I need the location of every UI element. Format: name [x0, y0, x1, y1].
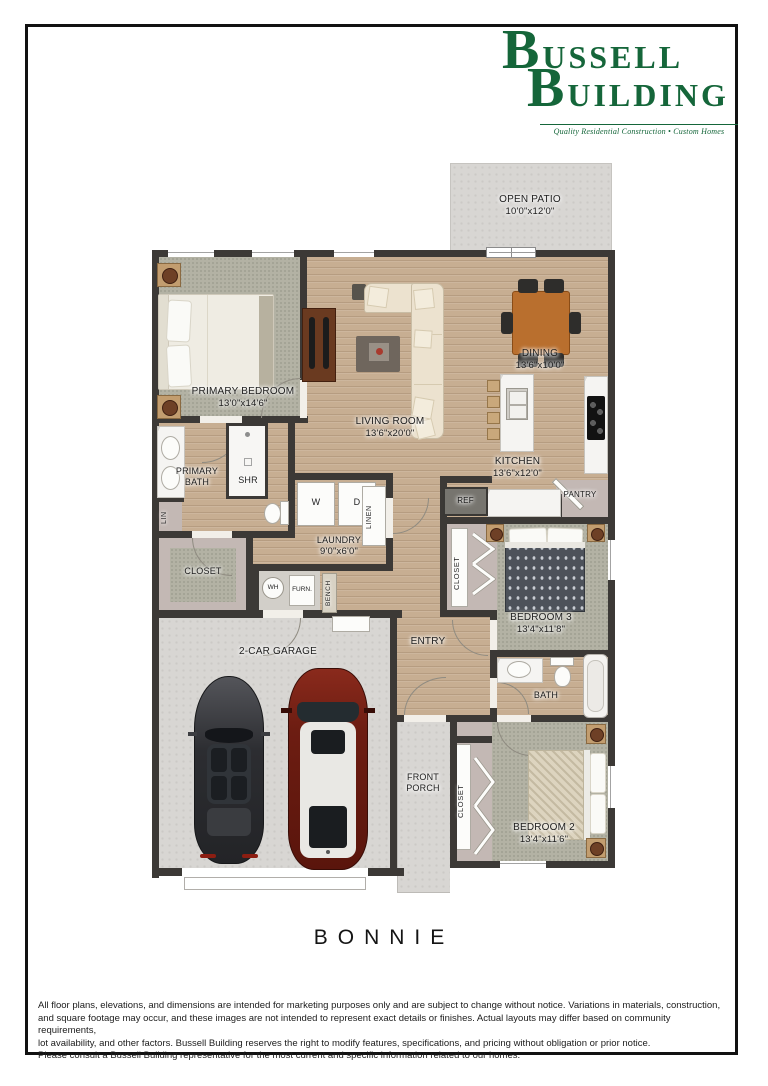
- room-label-closet-bed3: CLOSET: [452, 542, 461, 604]
- primary-bed-pillow-1: [166, 299, 192, 342]
- garage-step: [332, 616, 370, 632]
- room-label-primary-bedroom: PRIMARY BEDROOM 13'0"x14'6": [168, 386, 318, 410]
- disclaimer: All floor plans, elevations, and dimensi…: [38, 1000, 728, 1063]
- dining-chair-2: [544, 279, 564, 293]
- kitchen-sink: [506, 388, 528, 420]
- wall-exterior-top: [152, 250, 615, 257]
- logo-tagline: Quality Residential Construction • Custo…: [540, 124, 738, 136]
- dining-chair-5: [501, 312, 513, 334]
- convertible-deck: [207, 808, 251, 836]
- logo-word-building: BUILDING: [527, 68, 729, 115]
- room-label-lin: LIN: [161, 504, 168, 531]
- wall-garage-right: [390, 610, 397, 875]
- nightstand-bed3-1: [486, 524, 504, 542]
- room-label-linen: LINEN: [366, 492, 373, 542]
- primary-sink-1: [161, 436, 180, 460]
- room-label-bedroom2: BEDROOM 2 13'4"x11'6": [484, 822, 604, 846]
- island-stool-1: [487, 380, 500, 392]
- island-stool-4: [487, 428, 500, 440]
- convertible-windshield: [205, 728, 253, 743]
- bath-sink: [507, 661, 531, 678]
- bedroom3-comforter: [505, 542, 585, 612]
- primary-bed-fold: [207, 295, 208, 389]
- wall-closet-bed2-top: [450, 736, 492, 743]
- nightstand-primary-1: [157, 263, 181, 287]
- room-label-living-room: LIVING ROOM 13'6"x20'0": [320, 416, 460, 440]
- window-bedroom3: [608, 540, 615, 580]
- disclaimer-line-3: lot availability, and other factors. Bus…: [38, 1038, 728, 1051]
- room-label-shower: SHR: [228, 475, 268, 486]
- disclaimer-line-2: and square footage may occur, and these …: [38, 1013, 728, 1038]
- sofa-pillow-3: [413, 329, 432, 348]
- window-primary-bedroom-2: [252, 250, 294, 257]
- convertible-car: [194, 676, 264, 864]
- wall-mech-top: [252, 564, 393, 571]
- suv-sunroof: [311, 730, 345, 754]
- shower-head: [245, 432, 250, 437]
- label-washer: W: [297, 497, 335, 508]
- room-label-entry: ENTRY: [398, 636, 458, 648]
- wall-kitchen-bottom: [440, 517, 615, 524]
- nightstand-bed3-2: [587, 524, 605, 542]
- door-gap-primary-bath: [200, 416, 242, 423]
- room-label-pantry: PANTRY: [552, 490, 608, 500]
- convertible-taillight-left: [200, 854, 216, 858]
- page: BUSSELL BUILDING Quality Residential Con…: [0, 0, 768, 1086]
- shower-stall: [226, 423, 268, 499]
- garage-door-panel: [184, 877, 366, 890]
- primary-toilet-bowl: [264, 503, 281, 524]
- label-furnace: FURN.: [287, 586, 317, 594]
- door-gap-bath: [490, 678, 497, 708]
- cooktop: [587, 396, 605, 440]
- bedroom2-pillow-1: [590, 753, 606, 793]
- room-label-kitchen: KITCHEN 13'6"x12'0": [455, 456, 580, 480]
- sofa-pillow-1: [367, 286, 390, 309]
- room-label-front-porch: FRONT PORCH: [396, 772, 450, 794]
- coffee-table-decor: [376, 348, 383, 355]
- label-bench: BENCH: [325, 575, 332, 612]
- island-stool-3: [487, 412, 500, 424]
- window-primary-bedroom-1: [168, 250, 214, 257]
- convertible-taillight-right: [242, 854, 258, 858]
- door-gap-bedroom2: [497, 715, 531, 722]
- room-label-bath: BATH: [524, 690, 568, 701]
- bathtub: [583, 654, 608, 718]
- convertible-cockpit: [207, 744, 251, 804]
- dining-table: [512, 291, 570, 355]
- bath-toilet-bowl: [554, 666, 571, 687]
- coffee-table: [368, 342, 390, 362]
- nightstand-bed2-1: [586, 724, 606, 744]
- console-slot-2: [323, 317, 329, 369]
- window-bedroom2-side: [608, 766, 615, 808]
- room-label-garage: 2-CAR GARAGE: [208, 646, 348, 658]
- room-label-dining: DINING 13'6"x10'0": [480, 348, 600, 372]
- shower-drain: [244, 458, 252, 466]
- suv-car: [288, 668, 368, 870]
- suv-roof: [300, 722, 356, 858]
- disclaimer-line-4: Please consult a Bussell Building repres…: [38, 1050, 728, 1063]
- convertible-mirror-left: [188, 732, 197, 736]
- primary-bed: [158, 294, 274, 390]
- sliding-door-patio: [486, 247, 536, 258]
- dining-chair-6: [569, 312, 581, 334]
- linen-small-floor: [156, 502, 182, 532]
- room-label-bedroom3: BEDROOM 3 13'4"x11'8": [480, 612, 602, 636]
- room-label-primary-bath: PRIMARY BATH: [164, 466, 230, 488]
- suv-mirror-right: [364, 708, 375, 713]
- media-console: [302, 308, 336, 382]
- console-slot-1: [309, 317, 315, 369]
- suv-mirror-left: [281, 708, 292, 713]
- primary-toilet-tank: [280, 501, 289, 525]
- door-gap-front-door: [404, 715, 446, 722]
- kitchen-counter-bottom: [487, 489, 561, 517]
- window-living-room: [334, 250, 374, 257]
- door-gap-garage-entry: [263, 610, 303, 618]
- plan-title: BONNIE: [0, 926, 768, 950]
- bedroom3-sheet: [505, 542, 585, 548]
- room-label-open-patio: OPEN PATIO 10'0"x12'0": [470, 194, 590, 218]
- window-bedroom2-front: [500, 861, 546, 868]
- dining-chair-1: [518, 279, 538, 293]
- disclaimer-line-1: All floor plans, elevations, and dimensi…: [38, 1000, 728, 1013]
- room-label-closet-primary: CLOSET: [166, 566, 240, 577]
- primary-bed-throw: [259, 296, 273, 388]
- primary-bed-pillow-2: [166, 344, 192, 387]
- door-gap-laundry: [386, 498, 393, 538]
- sliding-door-track: [489, 252, 535, 253]
- door-gap-primary-closet: [192, 531, 232, 538]
- label-water-heater: WH: [262, 584, 284, 592]
- island-stool-2: [487, 396, 500, 408]
- bath-toilet-tank: [550, 657, 574, 666]
- front-porch-slab: [397, 722, 450, 893]
- bedroom3-bed: [505, 524, 585, 612]
- wall-closet-bed3-left: [440, 517, 447, 617]
- suv-windshield: [297, 702, 359, 722]
- convertible-mirror-right: [261, 732, 270, 736]
- suv-rear-window: [309, 806, 347, 848]
- wall-laundry-top: [293, 473, 393, 480]
- sofa-pillow-2: [413, 288, 435, 310]
- label-refrigerator: REF: [443, 496, 488, 506]
- room-label-closet-bed2: CLOSET: [456, 768, 465, 834]
